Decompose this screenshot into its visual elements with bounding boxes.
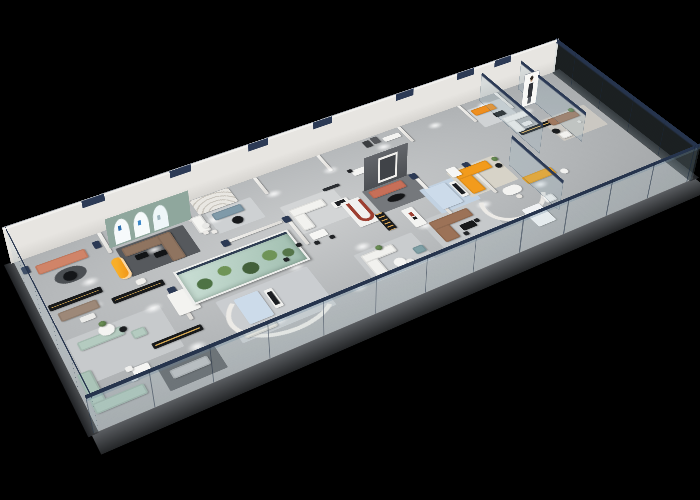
showroom-3d-render: Photorealistic 3D isometric cutaway rend… [0,0,700,500]
isometric-scene [14,73,689,432]
